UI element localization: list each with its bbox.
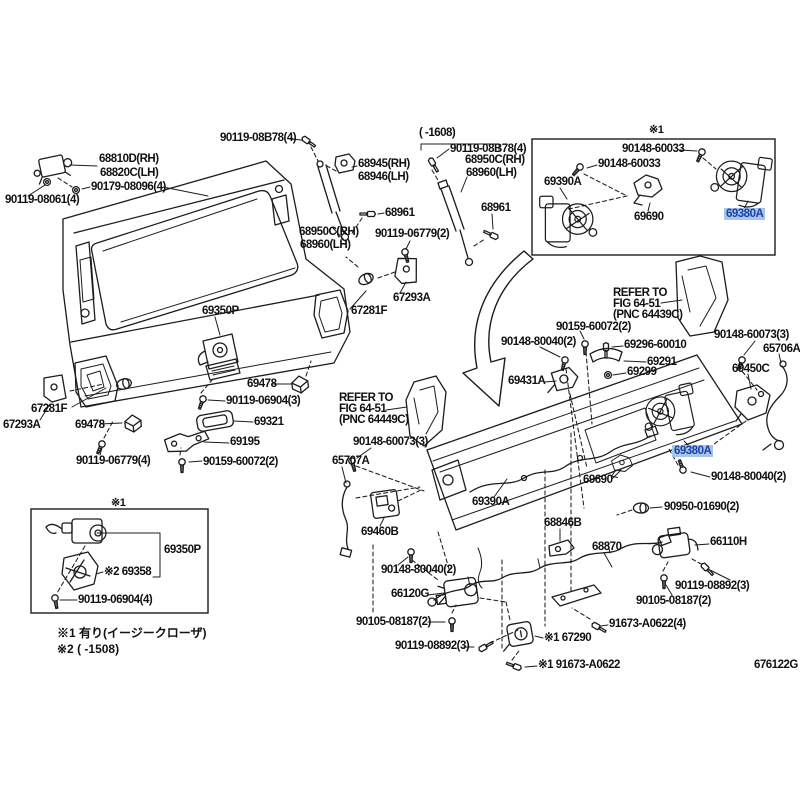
part-label-68950c-b: 68950C(RH)	[465, 154, 525, 166]
footnote-2: ※2 ( -1508)	[57, 643, 119, 655]
part-label-90119-06779-4: 90119-06779(4)	[76, 455, 150, 467]
part-label-65706a: 65706A	[763, 343, 800, 355]
switch-69460b	[370, 489, 399, 518]
part-label-68870: 68870	[592, 541, 621, 553]
part-label-69380a-selected-box[interactable]: 69380A	[724, 208, 765, 220]
part-label-68961-a: 68961	[385, 207, 414, 219]
closer-unit-66110h	[650, 525, 699, 559]
easy-closer-motor	[46, 519, 106, 543]
part-label-69460b: 69460B	[361, 526, 398, 538]
part-label-69195: 69195	[230, 436, 259, 448]
part-label-69431a: 69431A	[508, 375, 545, 387]
door-lock-69350p	[198, 334, 240, 380]
part-label-90159-60072-b: 90159-60072(2)	[556, 321, 631, 333]
part-label-90950-01690: 90950-01690(2)	[664, 501, 739, 513]
part-label-67281f-b: 67281F	[31, 403, 67, 415]
gas-strut-right	[438, 180, 473, 266]
part-label-69390a-a: 69390A	[544, 176, 581, 188]
part-label-90148-60073-a: 90148-60073(3)	[714, 329, 789, 341]
part-label-69478-b: 69478	[75, 419, 104, 431]
part-label-68961-b: 68961	[481, 202, 510, 214]
part-label-69350p-a: 69350P	[202, 305, 239, 317]
cable-65707a	[340, 481, 351, 557]
part-label-90148-60033-b: 90148-60033	[598, 158, 660, 170]
pillar-garnish-right	[676, 256, 728, 336]
refer-note-right-line3: (PNC 64439C)	[613, 309, 682, 321]
part-label-90159-60072-a: 90159-60072(2)	[203, 456, 278, 468]
part-label-69350p-b: 69350P	[164, 544, 201, 556]
part-label-68820c: 68820C(LH)	[100, 167, 158, 179]
part-label-67293a-b: 67293A	[3, 419, 40, 431]
latch-69358	[62, 552, 98, 590]
part-label-90148-60033-a: 90148-60033	[622, 143, 684, 155]
refer-note-left-line3: (PNC 64449C)	[339, 414, 408, 426]
part-label-90119-08b78-a: 90119-08B78(4)	[220, 132, 296, 144]
part-label-68946: 68946(LH)	[358, 171, 408, 183]
part-label-68950c-a: 68950C(RH)	[299, 226, 359, 238]
part-label-91673-a0622-note: ※1 91673-A0622	[538, 659, 620, 671]
part-label-67281f-a: 67281F	[351, 305, 387, 317]
part-label-90148-80040-a: 90148-80040(2)	[501, 336, 576, 348]
part-label-69390a-b: 69390A	[472, 496, 509, 508]
part-label-69380a-selected-main[interactable]: 69380A	[672, 445, 713, 457]
part-label-68945: 68945(RH)	[358, 158, 410, 170]
footnote-1: ※1 有り(イージークローザ)	[57, 627, 207, 639]
part-label-91673-a0622-4: 91673-A0622(4)	[609, 618, 686, 630]
parts-diagram-page: 68810D(RH) 68820C(LH) 90179-08096(4) 901…	[0, 0, 800, 800]
part-label-90148-80040-b: 90148-80040(2)	[711, 471, 786, 483]
part-label-69296-60010: 69296-60010	[624, 339, 686, 351]
diagram-artwork	[0, 0, 800, 800]
part-label-68960-b: 68960(LH)	[466, 167, 516, 179]
part-label-90119-06779-2: 90119-06779(2)	[375, 228, 449, 240]
part-label-90119-08061: 90119-08061(4)	[5, 194, 79, 206]
part-label-90119-06904-4: 90119-06904(4)	[78, 594, 152, 606]
part-label-69299: 69299	[627, 366, 656, 378]
part-label-66120g: 66120G	[391, 588, 429, 600]
part-label-69690-b: 69690	[583, 474, 612, 486]
box1-marker: ※1	[649, 124, 663, 136]
part-label-90105-08187-a: 90105-08187(2)	[356, 616, 431, 628]
lock-actuator-66120g	[434, 577, 478, 608]
lock-control-68810d	[32, 153, 75, 185]
drawing-number: 676122G	[754, 659, 798, 671]
part-label-90119-08892-b: 90119-08892(3)	[675, 580, 749, 592]
part-label-66110h: 66110H	[710, 536, 747, 548]
part-label-69690-a: 69690	[634, 211, 663, 223]
lock-assembly-69390a-box	[540, 196, 597, 247]
part-label-69321: 69321	[254, 416, 283, 428]
part-label-68960-a: 68960(LH)	[300, 239, 350, 251]
part-label-90105-08187-b: 90105-08187(2)	[636, 595, 711, 607]
part-label-65707a: 65707A	[332, 455, 369, 467]
bracket-69690-box	[634, 175, 662, 205]
part-label-68846b: 68846B	[544, 517, 581, 529]
part-label-69358: ※2 69358	[104, 566, 151, 578]
part-label-69450c: 69450C	[732, 363, 769, 375]
part-label-69478-a: 69478	[247, 378, 276, 390]
part-label-90119-06904-3: 90119-06904(3)	[226, 395, 300, 407]
box2-marker: ※1	[111, 497, 125, 509]
part-label-90148-80040-c: 90148-80040(2)	[381, 564, 456, 576]
part-label-67293a-a: 67293A	[393, 292, 430, 304]
part-label-90179-08096: 90179-08096(4)	[91, 181, 166, 193]
part-label-67290: ※1 67290	[544, 632, 591, 644]
detail-box-lock-variants	[532, 139, 775, 255]
lock-assembly-69380a-box	[709, 151, 773, 210]
part-label-90148-60073-b: 90148-60073(3)	[353, 436, 428, 448]
part-label-68810d: 68810D(RH)	[99, 153, 159, 165]
production-range-label: ( -1608)	[419, 127, 455, 139]
part-label-90119-08892-a: 90119-08892(3)	[395, 640, 469, 652]
